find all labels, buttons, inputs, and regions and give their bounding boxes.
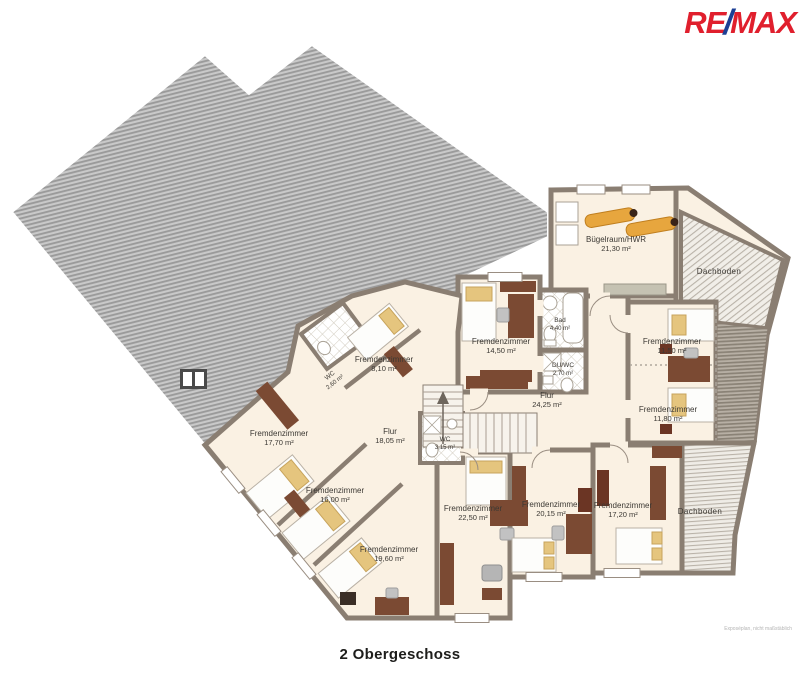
label-fz-1450-area: 14,50 m² xyxy=(486,346,516,355)
label-fz-1720-area: 17,20 m² xyxy=(608,510,638,519)
label-fz-2250-area: 22,50 m² xyxy=(458,513,488,522)
floorplan-page: RE/MAX xyxy=(0,0,800,682)
label-dachboden-top: Dachboden xyxy=(697,267,742,276)
label-wc-315-area: 3,15 m² xyxy=(435,445,455,451)
label-flur-2425: Flur xyxy=(540,391,554,400)
label-duwc-area: 2,70 m² xyxy=(553,371,573,377)
label-fz-1180: Fremdenzimmer xyxy=(639,405,698,414)
label-fz-1450: Fremdenzimmer xyxy=(472,337,531,346)
logo-max: MAX xyxy=(730,5,796,40)
label-fz-2250: Fremdenzimmer xyxy=(444,504,503,513)
label-fz-810: Fremdenzimmer xyxy=(355,355,414,364)
label-bad-area: 4,40 m² xyxy=(550,326,570,332)
label-flur-1805: Flur xyxy=(383,427,397,436)
label-buegelraum: Bügelraum/HWR xyxy=(586,235,646,244)
label-fz-1770: Fremdenzimmer xyxy=(250,429,309,438)
label-fz-2015: Fremdenzimmer xyxy=(522,500,581,509)
roof-strip-right xyxy=(716,322,769,443)
label-fz-810-area: 8,10 m² xyxy=(371,364,397,373)
label-flur-2425-area: 24,25 m² xyxy=(532,400,562,409)
logo-re: RE xyxy=(684,5,725,40)
label-fz-2015-area: 20,15 m² xyxy=(536,509,566,518)
label-wc-315: WC xyxy=(440,436,451,443)
label-duwc: DU/WC xyxy=(552,362,574,369)
label-fz-1150: Fremdenzimmer xyxy=(643,337,702,346)
logo-slash-icon: / xyxy=(723,3,732,42)
page-title: 2 Obergeschoss xyxy=(0,646,800,663)
remax-logo: RE/MAX xyxy=(684,2,796,42)
label-fz-1600: Fremdenzimmer xyxy=(306,486,365,495)
label-fz-1720: Fremdenzimmer xyxy=(594,501,653,510)
label-buegelraum-area: 21,30 m² xyxy=(601,244,631,253)
roof-chimney xyxy=(180,369,207,389)
label-fz-1960: Fremdenzimmer xyxy=(360,545,419,554)
sideboard xyxy=(604,284,666,295)
disclaimer-note: Exposéplan, nicht maßstäblich xyxy=(724,626,792,632)
label-bad: Bad xyxy=(554,317,566,324)
label-fz-1770-area: 17,70 m² xyxy=(264,438,294,447)
label-dachboden-bottom: Dachboden xyxy=(678,507,723,516)
label-fz-1150-area: 11,50 m² xyxy=(657,346,687,355)
floor-plan: Bügelraum/HWR 21,30 m² Dachboden Fremden… xyxy=(0,0,800,682)
label-fz-1960-area: 19,60 m² xyxy=(374,554,404,563)
label-flur-1805-area: 18,05 m² xyxy=(375,436,405,445)
label-fz-1600-area: 16,00 m² xyxy=(320,495,350,504)
label-fz-1180-area: 11,80 m² xyxy=(653,414,683,423)
